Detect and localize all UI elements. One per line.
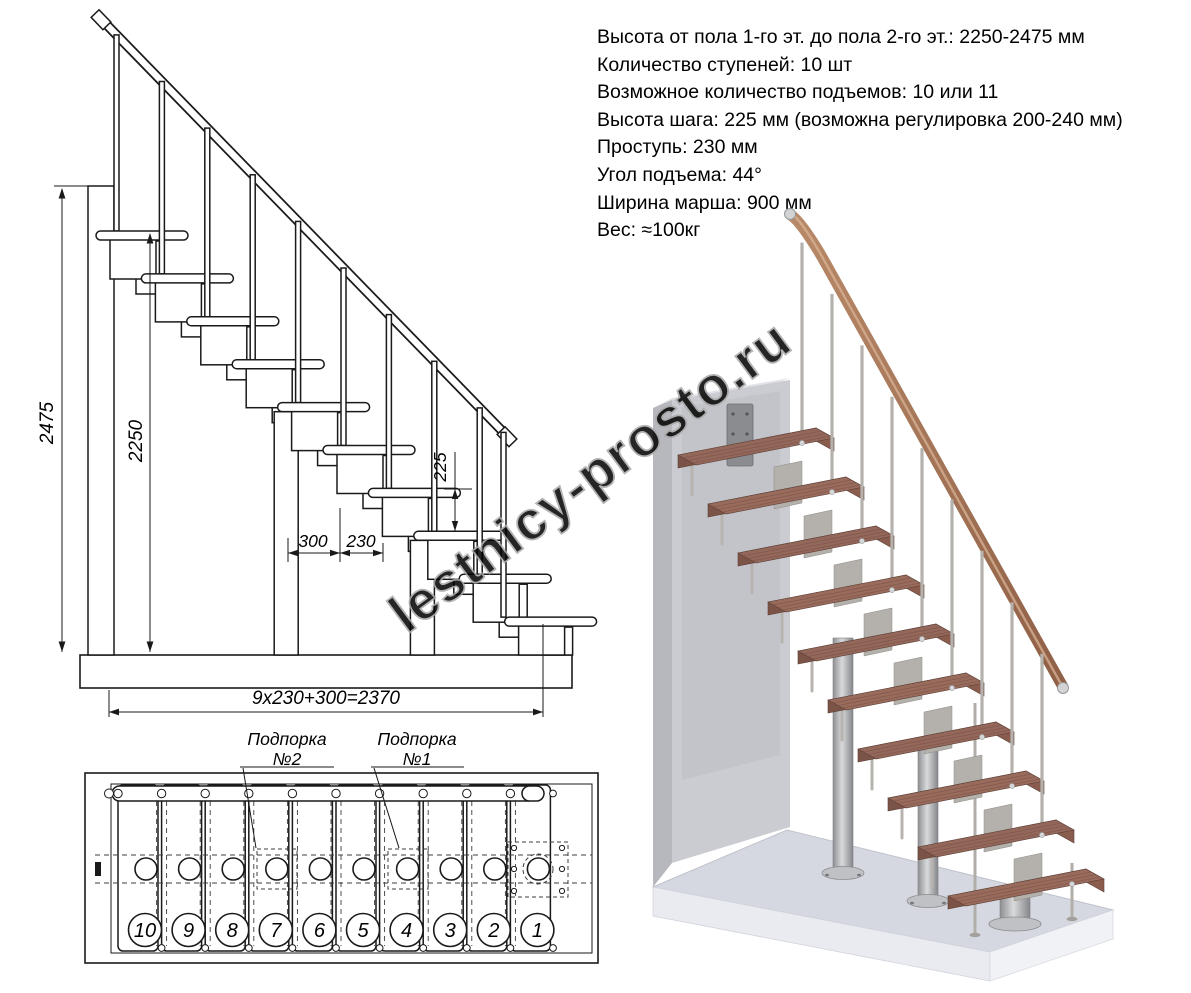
dim-label-tread-run: 230 xyxy=(345,531,375,551)
dim-label-top-run: 300 xyxy=(298,531,327,551)
page: 2475 2250 225 300 230 xyxy=(0,0,1191,993)
baluster-mount xyxy=(288,789,296,797)
dim-label-total-height: 2475 xyxy=(37,401,58,445)
tread-side xyxy=(141,274,233,283)
stair-3d-render xyxy=(620,195,1191,993)
bolt-hole xyxy=(559,888,564,893)
rail-end-detail xyxy=(105,789,114,798)
side-steps-group xyxy=(96,35,597,655)
spec-line: Проступь: 230 мм xyxy=(597,134,1172,162)
baluster-side xyxy=(296,221,301,402)
baluster-socket xyxy=(1009,783,1014,788)
column-hole xyxy=(179,858,201,880)
tread-side xyxy=(278,403,370,412)
bolt-hole xyxy=(559,845,564,850)
screw xyxy=(158,945,165,952)
screw xyxy=(245,945,252,952)
support2-number: №2 xyxy=(273,749,302,769)
baluster-socket xyxy=(829,489,834,494)
support1-number: №1 xyxy=(403,749,432,769)
column-hole xyxy=(135,858,157,880)
support2-label: Подпорка xyxy=(247,729,326,749)
step-number: 6 xyxy=(314,920,326,942)
tread-side xyxy=(96,231,188,240)
baluster-side xyxy=(501,432,506,617)
bolt-hole xyxy=(511,845,516,850)
floor-slab xyxy=(653,830,1113,981)
tread-side xyxy=(232,360,324,369)
floor-base xyxy=(80,655,572,688)
baluster-mount xyxy=(506,789,514,797)
module-box xyxy=(382,496,428,536)
tread-side xyxy=(187,317,279,326)
column-hole xyxy=(222,858,244,880)
step-number: 3 xyxy=(445,920,456,942)
baluster-socket xyxy=(1069,881,1074,886)
spec-line: Высота шага: 225 мм (возможна регулировк… xyxy=(597,107,1172,135)
screw xyxy=(550,790,557,797)
screw xyxy=(463,945,470,952)
column-hole xyxy=(397,858,419,880)
handrail-side xyxy=(91,10,517,447)
dim-label-total-run: 9x230+300=2370 xyxy=(252,688,400,709)
baluster-socket xyxy=(949,685,954,690)
step-number: 2 xyxy=(487,920,499,942)
bolt-hole xyxy=(511,888,516,893)
column-hole xyxy=(484,858,506,880)
step-number: 5 xyxy=(357,920,369,942)
baluster-side xyxy=(205,128,210,317)
screw xyxy=(420,945,427,952)
screw xyxy=(333,945,340,952)
baluster-side xyxy=(477,408,482,574)
column-hole xyxy=(440,858,462,880)
plan-generated: 10987654321 xyxy=(95,785,592,951)
dim-label-clear-height: 2250 xyxy=(126,419,147,463)
screw xyxy=(507,945,514,952)
screw xyxy=(289,945,296,952)
spec-line: Количество ступеней: 10 шт xyxy=(597,52,1172,80)
baluster-side xyxy=(250,175,255,360)
baluster-socket xyxy=(799,440,804,445)
support1-label: Подпорка xyxy=(377,729,456,749)
step-number: 10 xyxy=(134,920,156,942)
module-box xyxy=(246,368,292,408)
column-hole xyxy=(527,858,549,880)
tread-side xyxy=(323,446,415,455)
spec-line: Высота от пола 1-го эт. до пола 2-го эт.… xyxy=(597,24,1172,52)
tread-side xyxy=(414,531,506,540)
step-number: 8 xyxy=(227,920,238,942)
baluster-mount xyxy=(463,789,471,797)
module-box xyxy=(428,539,474,579)
baluster-mount xyxy=(157,789,165,797)
baluster-mount xyxy=(201,789,209,797)
module-box xyxy=(337,454,383,494)
step-number: 4 xyxy=(401,920,412,942)
spec-line: Возможное количество подъемов: 10 или 11 xyxy=(597,79,1172,107)
baluster-mount xyxy=(114,789,122,797)
module-box xyxy=(519,625,565,655)
handrail-end-plan xyxy=(522,786,544,801)
baluster-socket xyxy=(859,538,864,543)
screw xyxy=(202,945,209,952)
step-number: 7 xyxy=(270,920,282,942)
baluster-side xyxy=(159,82,164,274)
tread-side xyxy=(368,488,460,497)
screw xyxy=(550,945,557,952)
step-number: 9 xyxy=(183,920,194,942)
plan-view-drawing: 10987654321 Подпорка №2 Подпорка №1 xyxy=(0,715,620,993)
handrail-plan xyxy=(112,786,536,801)
column-hole xyxy=(309,858,331,880)
baluster-side xyxy=(432,361,437,531)
baluster-mount xyxy=(245,789,253,797)
baluster-side xyxy=(341,268,346,446)
dim-label-step-rise: 225 xyxy=(430,452,450,482)
baluster-side xyxy=(114,35,119,231)
baluster-socket xyxy=(889,587,894,592)
rail-cap-bottom xyxy=(1058,683,1069,694)
screw xyxy=(376,945,383,952)
column-hole xyxy=(266,858,288,880)
spec-line: Угол подъема: 44° xyxy=(597,162,1172,190)
module-box xyxy=(473,582,519,622)
baluster-socket xyxy=(1039,832,1044,837)
module-box xyxy=(155,282,201,322)
bolt-hole xyxy=(559,866,564,871)
bolt-hole xyxy=(511,866,516,871)
baluster-socket xyxy=(919,636,924,641)
module-box xyxy=(292,411,338,451)
beam-end xyxy=(95,862,101,876)
baluster-socket xyxy=(979,734,984,739)
module-box xyxy=(110,239,156,279)
rail-cap-top xyxy=(785,209,796,220)
tread-side xyxy=(505,617,597,626)
step-number: 1 xyxy=(532,920,543,942)
baluster-mount xyxy=(419,789,427,797)
side-elevation-drawing: 2475 2250 225 300 230 xyxy=(0,0,620,715)
column-hole xyxy=(353,858,375,880)
baluster-mount xyxy=(332,789,340,797)
baluster-side xyxy=(386,315,391,489)
module-box xyxy=(201,325,247,365)
